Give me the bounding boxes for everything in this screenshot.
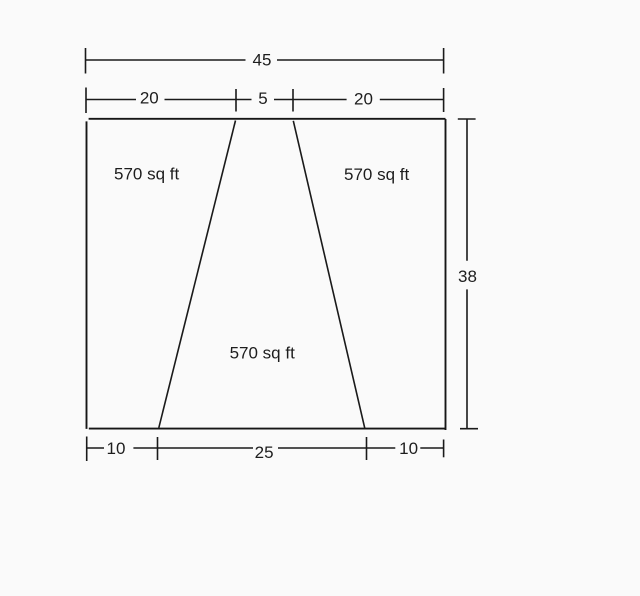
svg-text:10: 10 [399, 439, 418, 458]
svg-text:25: 25 [255, 443, 274, 462]
svg-text:570 sq ft: 570 sq ft [230, 344, 295, 363]
svg-text:570 sq ft: 570 sq ft [114, 165, 179, 184]
svg-text:38: 38 [458, 267, 477, 286]
svg-text:20: 20 [140, 89, 159, 108]
svg-text:20: 20 [354, 90, 373, 109]
svg-text:10: 10 [107, 439, 126, 458]
svg-text:570 sq ft: 570 sq ft [344, 165, 409, 184]
svg-text:45: 45 [253, 51, 272, 70]
svg-text:5: 5 [258, 89, 267, 108]
